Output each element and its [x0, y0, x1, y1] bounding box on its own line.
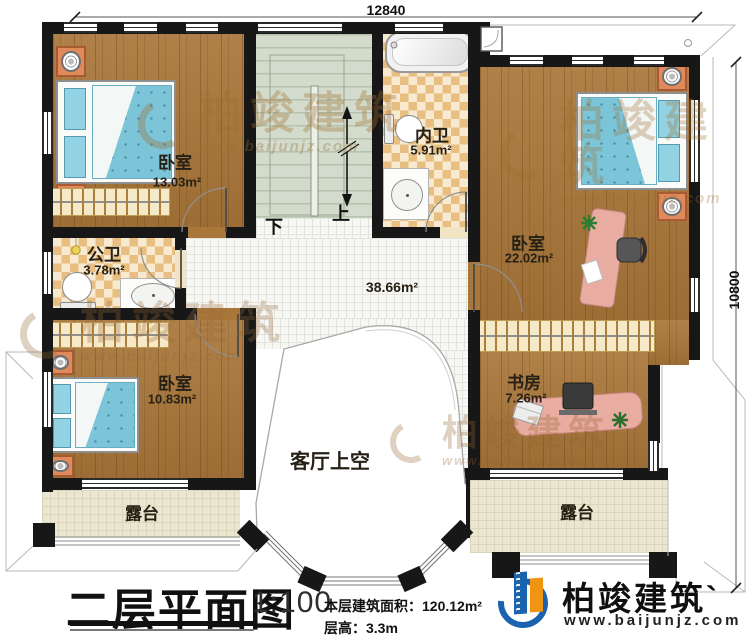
bed — [47, 377, 139, 453]
mattress — [75, 382, 135, 448]
door-opening — [468, 262, 480, 310]
room-area: 7.26m² — [505, 392, 546, 405]
dimension-height: 10800 — [726, 271, 742, 310]
room-area: 3.78m² — [83, 264, 124, 277]
wardrobe — [47, 322, 169, 348]
room-label: 露台 — [125, 506, 159, 523]
pillow — [658, 144, 680, 182]
wall-segment — [372, 22, 383, 238]
watermark-logo-icon — [385, 416, 436, 467]
wardrobe — [48, 188, 170, 216]
wall-segment — [226, 227, 256, 238]
blanket — [93, 86, 136, 178]
bathtub — [385, 31, 475, 73]
logo-url: www.baijunjz.com — [564, 612, 741, 629]
room-area: 5.91m² — [410, 144, 451, 157]
window — [82, 478, 188, 489]
window — [42, 112, 53, 154]
door-opening — [175, 250, 186, 288]
door-opening — [197, 308, 240, 320]
company-logo: 柏竣建筑` www.baijunjz.com — [492, 566, 748, 638]
dimension-width: 12840 — [367, 2, 406, 18]
stair-up-label: 上 — [332, 205, 350, 223]
window — [490, 468, 623, 479]
room-label: 露台 — [560, 505, 594, 522]
wall-segment — [244, 22, 256, 238]
floor-height-note: 层高：3.3m — [324, 618, 398, 638]
room-label: 书房 — [507, 375, 541, 392]
pillow — [658, 100, 680, 138]
room-area: 22.02m² — [505, 252, 553, 265]
wall-segment — [188, 478, 256, 490]
window — [42, 252, 53, 294]
wall-segment — [42, 227, 188, 238]
eave-marker — [685, 40, 692, 47]
wall-segment — [240, 308, 256, 320]
room-label: 卧室 — [158, 376, 192, 393]
door-opening — [440, 227, 468, 238]
window — [648, 441, 659, 471]
hall-floor — [430, 350, 468, 485]
wall-segment — [372, 227, 440, 238]
room-study — [480, 352, 648, 468]
window — [395, 22, 443, 33]
hall-area: 38.66m² — [366, 280, 418, 294]
wall-segment — [42, 308, 197, 320]
window — [124, 22, 157, 33]
drawing-scale: 1:100 — [252, 586, 332, 620]
hall-floor — [256, 318, 468, 350]
floor-plan: 柏竣建筑www.baijunjz.com 柏竣建筑www.baijunjz.co… — [0, 0, 750, 640]
pillow — [64, 88, 86, 130]
room-label: 公卫 — [87, 247, 121, 264]
mattress — [581, 97, 657, 185]
blanket — [619, 98, 656, 184]
room-label: 卧室 — [158, 155, 192, 172]
window — [64, 22, 97, 33]
nightstand — [657, 192, 687, 221]
door-opening — [188, 227, 226, 238]
room-staircase — [256, 34, 372, 218]
floor-area-note: 本层建筑面积：120.12m² — [324, 596, 482, 616]
room-area: 13.03m² — [153, 176, 201, 189]
lamp-icon — [52, 460, 69, 472]
wall-segment — [648, 365, 660, 443]
wall-segment — [458, 468, 490, 480]
sink — [383, 168, 429, 220]
window — [689, 278, 700, 312]
title-underline — [70, 621, 254, 626]
window — [510, 55, 543, 66]
lamp-icon — [662, 67, 682, 86]
room-area: 10.83m² — [148, 393, 196, 406]
wall-segment — [458, 480, 470, 538]
blanket — [76, 383, 108, 447]
window — [634, 55, 664, 66]
window — [258, 22, 342, 33]
lamp-icon — [61, 51, 81, 72]
wall-segment — [468, 22, 480, 262]
lamp-icon — [52, 355, 69, 370]
pillow — [53, 418, 71, 448]
wall-segment — [244, 320, 256, 490]
void-label: 客厅上空 — [290, 452, 370, 472]
title-underline-thin — [70, 629, 254, 631]
wall-segment — [623, 468, 668, 480]
stair-down-label: 下 — [265, 218, 283, 236]
wall-segment — [468, 322, 480, 470]
wall-segment — [468, 310, 480, 322]
window — [42, 372, 53, 427]
logo-building-blue-icon — [514, 572, 527, 615]
window — [689, 100, 700, 182]
closet — [472, 320, 655, 352]
logo-building-orange-icon — [530, 578, 543, 613]
window — [572, 55, 603, 66]
wall-segment — [42, 478, 82, 490]
nightstand — [56, 46, 86, 77]
pillow — [53, 384, 71, 414]
pillow — [64, 136, 86, 178]
hall-floor — [186, 238, 468, 318]
bed — [576, 92, 688, 190]
wall-segment — [175, 238, 186, 250]
window — [186, 22, 218, 33]
terrace-post — [33, 523, 55, 547]
lamp-icon — [662, 197, 682, 216]
